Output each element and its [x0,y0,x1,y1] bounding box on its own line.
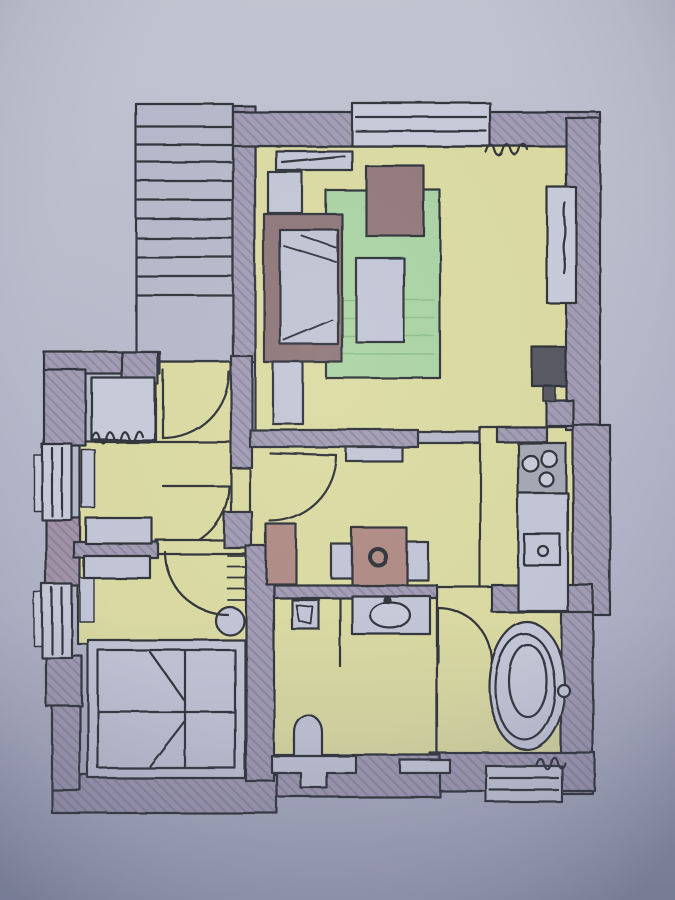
floor-plan-sketch [0,0,675,900]
photo-bottom-shade [0,0,675,900]
